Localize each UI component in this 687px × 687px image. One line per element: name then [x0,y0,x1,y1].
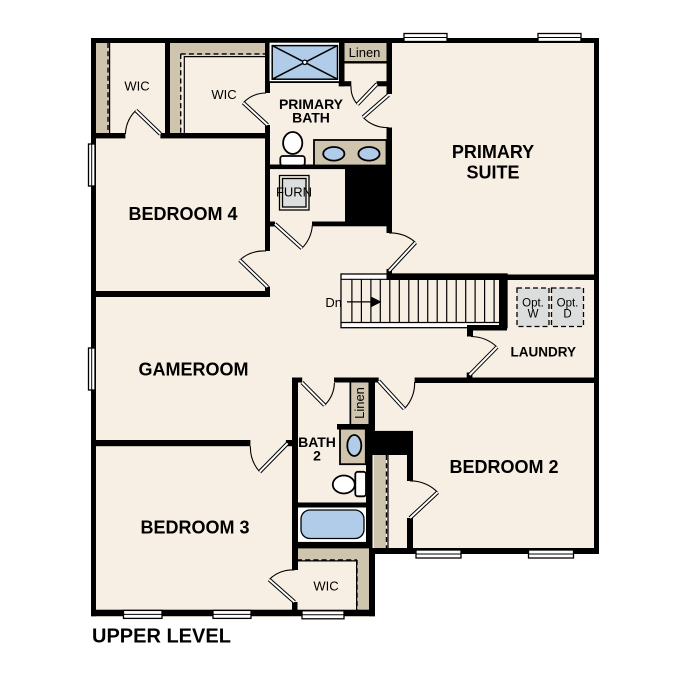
svg-text:W: W [528,309,539,321]
svg-text:WIC: WIC [313,579,338,594]
svg-text:SUITE: SUITE [466,163,519,183]
svg-text:FURN: FURN [276,185,312,200]
svg-text:Dn: Dn [325,295,342,310]
svg-text:BEDROOM 3: BEDROOM 3 [140,518,249,538]
svg-text:Linen: Linen [352,387,367,419]
svg-text:BEDROOM 2: BEDROOM 2 [449,457,558,477]
svg-text:BATH: BATH [292,109,330,125]
svg-text:Linen: Linen [349,45,381,60]
svg-text:2: 2 [313,448,321,464]
svg-text:GAMEROOM: GAMEROOM [139,360,249,380]
svg-text:D: D [563,309,571,321]
svg-text:Opt.: Opt. [522,297,544,309]
svg-text:WIC: WIC [124,79,149,94]
svg-text:PRIMARY: PRIMARY [452,142,534,162]
svg-text:UPPER LEVEL: UPPER LEVEL [92,626,231,648]
svg-text:WIC: WIC [211,87,236,102]
svg-text:BEDROOM 4: BEDROOM 4 [128,204,237,224]
svg-text:LAUNDRY: LAUNDRY [511,345,577,360]
svg-text:Opt.: Opt. [557,297,579,309]
